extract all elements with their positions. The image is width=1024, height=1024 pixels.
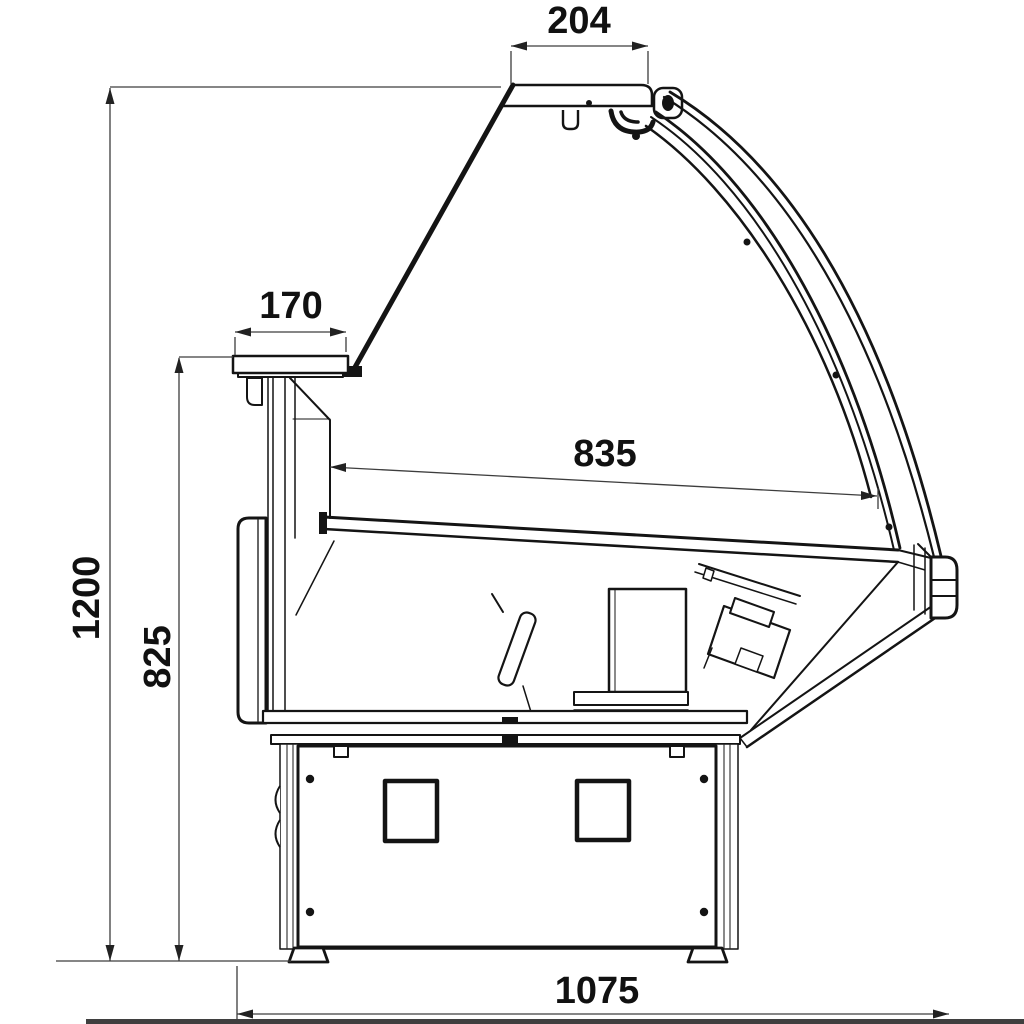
deck-corner-joint [319,512,327,534]
dim-825-label: 825 [137,625,179,688]
base-cabinet [276,744,739,962]
probe-stem-top [492,594,503,612]
vent-opening-right [577,781,629,840]
probe-stem-bottom [523,686,531,712]
technical-drawing: 204 170 835 1200 825 [0,0,1024,1024]
dim-835-label: 835 [573,433,636,475]
rear-bumper-profile [931,557,957,618]
outer-curve-2 [664,97,934,557]
dimension-shelf-height: 825 [137,357,233,961]
band-joint-upper [502,717,518,724]
dim-825-lines [179,357,233,961]
canopy-body [501,85,652,106]
dim-204-arrow-left [511,42,527,51]
panel-screw-top-right [700,775,708,783]
front-bumper [238,518,266,723]
air-duct-end [740,738,747,747]
shelf-support-step [247,378,262,405]
rear-curved-glass [646,92,941,557]
dim-1075-arrow-right [933,1010,949,1019]
shelf-slab [233,356,348,373]
evaporator-bracket [703,568,714,581]
temperature-probe [496,611,537,688]
dim-204-arrow-right [632,42,648,51]
canopy-screw [586,100,592,106]
front-glass [344,85,513,377]
bottom-border-bar [86,1019,1024,1024]
dim-835-arrow-left [330,463,346,472]
glass-screw-1 [744,239,751,246]
dim-1075-label: 1075 [555,970,640,1012]
dim-825-arrow-bottom [175,945,184,961]
foot-right [688,948,727,962]
dim-204-lines [511,46,648,84]
cabinet-front-panel [298,746,716,947]
bumper-profile [238,518,266,723]
insulation-diagonal [296,541,334,615]
counter-structure [233,85,957,962]
dim-170-lines [235,332,346,355]
base-bands [263,711,747,745]
compressor-base [574,692,688,705]
dim-170-arrow-right [330,328,346,337]
compressor-box [609,589,686,692]
dim-170-label: 170 [259,285,322,327]
front-glass-pane [354,85,513,369]
dimension-shelf-depth: 170 [235,285,346,355]
hinge-pivot-screw [632,132,640,140]
panel-screw-bottom-right [700,908,708,916]
cabinet-tab-left [334,746,348,757]
vent-opening-left [385,781,437,841]
foot-left [289,948,328,962]
middle-curve-1 [656,112,900,548]
interior-components [492,564,800,712]
dim-204-label: 204 [547,0,610,42]
dim-170-arrow-left [235,328,251,337]
panel-screw-top-left [306,775,314,783]
front-column-profile [268,378,295,713]
glass-screw-3 [886,524,893,531]
dimension-deck-length: 835 [330,433,878,509]
dimension-overall-depth: 1075 [237,966,949,1019]
canopy-bracket [563,110,578,129]
inner-curve [646,126,871,497]
panel-screw-bottom-left [306,908,314,916]
drawing-canvas: 204 170 835 1200 825 [0,0,1024,1024]
dimension-canopy-width: 204 [511,0,648,84]
glass-screw-2 [833,372,840,379]
evaporator-rail-1 [699,564,800,596]
dim-1200-arrow-top [106,88,115,104]
hinge-inner-arc [621,112,638,122]
cabinet-tab-right [670,746,684,757]
dim-1200-arrow-bottom [106,945,115,961]
inner-wall-upper [290,378,330,518]
dim-825-arrow-top [175,357,184,373]
dim-1200-label: 1200 [66,556,108,641]
dim-1075-arrow-left [237,1010,253,1019]
